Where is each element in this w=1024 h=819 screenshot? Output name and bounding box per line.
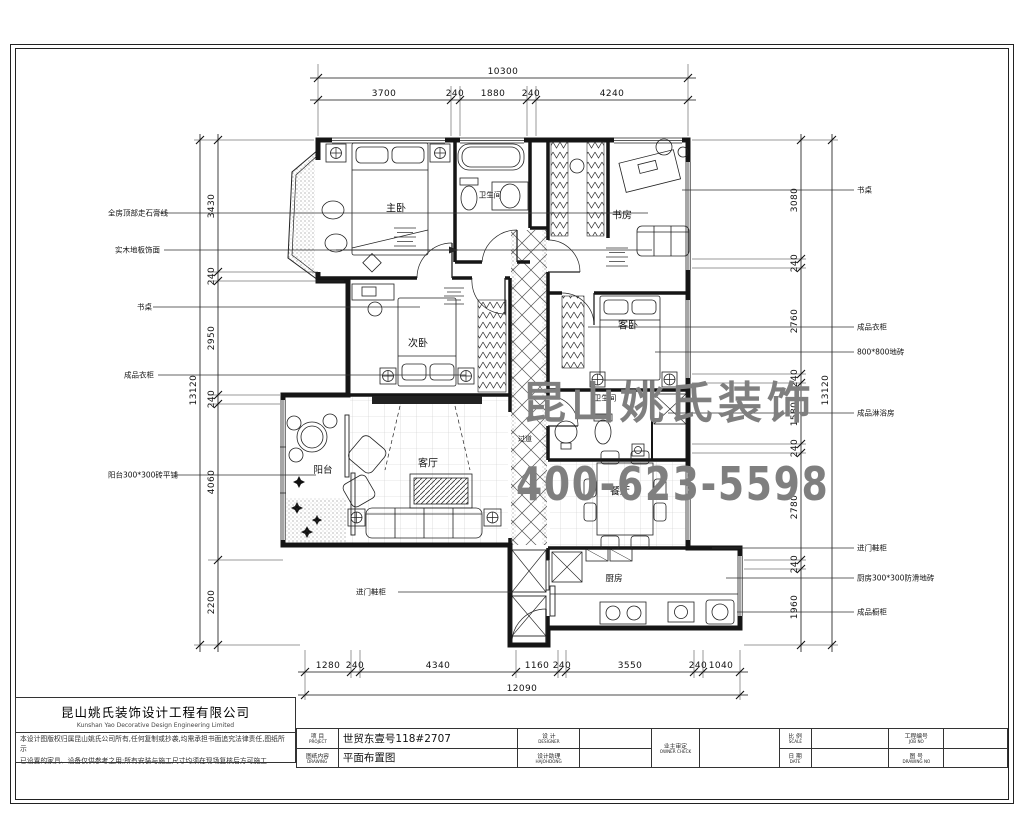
annotation-label: 实木地板饰面 — [115, 245, 160, 256]
dimension-label: 240 — [790, 555, 800, 573]
dimension-label: 13120 — [189, 375, 199, 406]
annotation-label: 厨房300*300防滑地砖 — [857, 573, 934, 584]
dimension-label: 4240 — [600, 89, 625, 99]
dimension-label: 1280 — [316, 661, 341, 671]
text-layer: 1030037002401880240424012802404340116024… — [0, 0, 1024, 819]
dimension-label: 240 — [689, 661, 707, 671]
dimension-label: 2200 — [207, 590, 217, 615]
dimension-label: 240 — [207, 267, 217, 285]
room-label: 阳台 — [313, 462, 332, 476]
annotation-label: 成品衣柜 — [857, 322, 887, 333]
dimension-label: 1160 — [525, 661, 550, 671]
annotation-label: 书桌 — [857, 185, 872, 196]
annotation-label: 阳台300*300砖平铺 — [108, 470, 178, 481]
annotation-label: 进门鞋柜 — [356, 587, 386, 598]
dimension-label: 13120 — [821, 375, 831, 406]
dimension-label: 12090 — [507, 684, 538, 694]
dimension-label: 240 — [446, 89, 464, 99]
dimension-label: 240 — [346, 661, 364, 671]
room-label: 客卧 — [618, 317, 638, 332]
annotation-label: 全房顶部走石膏线 — [108, 208, 168, 219]
annotation-label: 成品淋浴房 — [857, 408, 895, 419]
dimension-label: 240 — [790, 254, 800, 272]
dimension-label: 240 — [522, 89, 540, 99]
dimension-label: 3430 — [207, 194, 217, 219]
dimension-label: 3700 — [372, 89, 397, 99]
dimension-label: 1960 — [790, 595, 800, 620]
annotation-label: 成品橱柜 — [857, 607, 887, 618]
dimension-label: 10300 — [488, 67, 519, 77]
dimension-label: 4060 — [207, 470, 217, 495]
annotation-label: 书桌 — [137, 302, 152, 313]
room-label: 厨房 — [605, 572, 622, 584]
room-label: 卫生间 — [479, 190, 502, 201]
floor-plan-sheet: 1030037002401880240424012802404340116024… — [0, 0, 1024, 819]
watermark-phone: 400-623-5598 — [516, 461, 829, 507]
dimension-label: 2760 — [790, 309, 800, 334]
room-label: 主卧 — [386, 200, 406, 215]
annotation-label: 成品衣柜 — [124, 370, 154, 381]
dimension-label: 2950 — [207, 326, 217, 351]
dimension-label: 4340 — [426, 661, 451, 671]
dimension-label: 3080 — [790, 188, 800, 213]
dimension-label: 3550 — [618, 661, 643, 671]
dimension-label: 240 — [207, 390, 217, 408]
watermark-brand: 昆山姚氏装饰 — [522, 382, 816, 426]
dimension-label: 1880 — [481, 89, 506, 99]
room-label: 书房 — [612, 207, 632, 222]
room-label: 客厅 — [418, 455, 438, 470]
dimension-label: 240 — [790, 439, 800, 457]
dimension-label: 1040 — [709, 661, 734, 671]
room-label: 过道 — [518, 434, 532, 444]
annotation-label: 进门鞋柜 — [857, 543, 887, 554]
annotation-label: 800*800地砖 — [857, 347, 904, 358]
dimension-label: 240 — [553, 661, 571, 671]
room-label: 次卧 — [408, 335, 428, 350]
